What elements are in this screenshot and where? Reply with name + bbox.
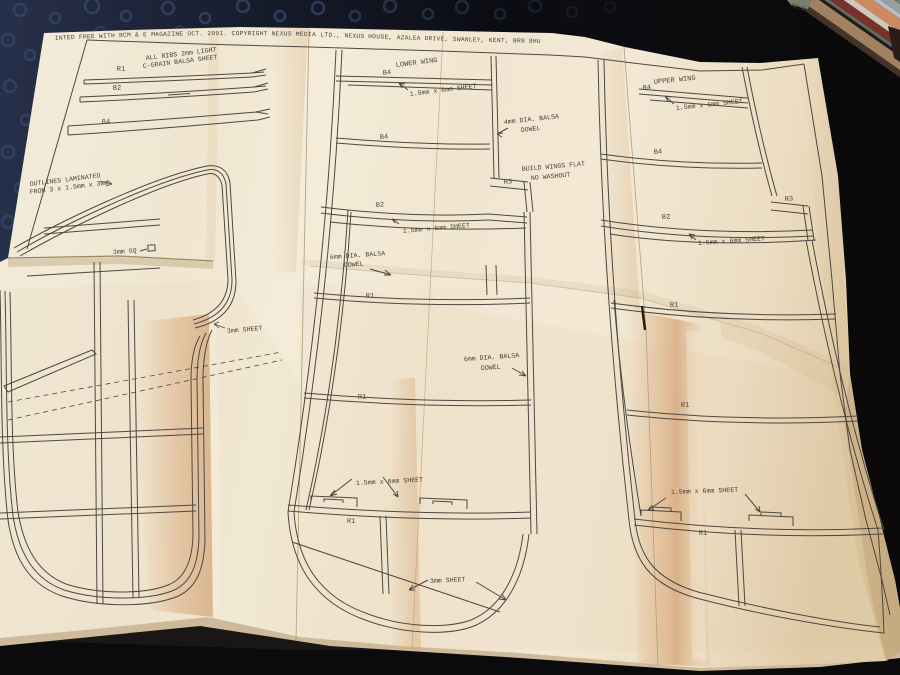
svg-text:R1: R1 — [347, 518, 356, 526]
svg-text:R1: R1 — [366, 292, 375, 301]
svg-text:R3: R3 — [785, 195, 794, 204]
svg-text:R1: R1 — [681, 402, 690, 410]
svg-text:R1: R1 — [358, 394, 367, 402]
svg-text:R4: R4 — [642, 84, 651, 93]
svg-text:B2: B2 — [113, 84, 122, 93]
svg-text:R1: R1 — [699, 530, 708, 538]
svg-text:DOWEL: DOWEL — [481, 364, 501, 372]
svg-text:R1: R1 — [670, 302, 679, 310]
svg-text:B4: B4 — [380, 133, 389, 142]
svg-text:B4: B4 — [382, 69, 391, 78]
svg-text:B2: B2 — [662, 213, 671, 222]
svg-text:DOWEL: DOWEL — [344, 261, 364, 269]
svg-text:B4: B4 — [102, 118, 111, 127]
svg-text:B2: B2 — [376, 201, 385, 210]
svg-text:B4: B4 — [654, 148, 663, 157]
svg-text:R3: R3 — [504, 178, 513, 187]
svg-text:R1: R1 — [117, 65, 126, 74]
